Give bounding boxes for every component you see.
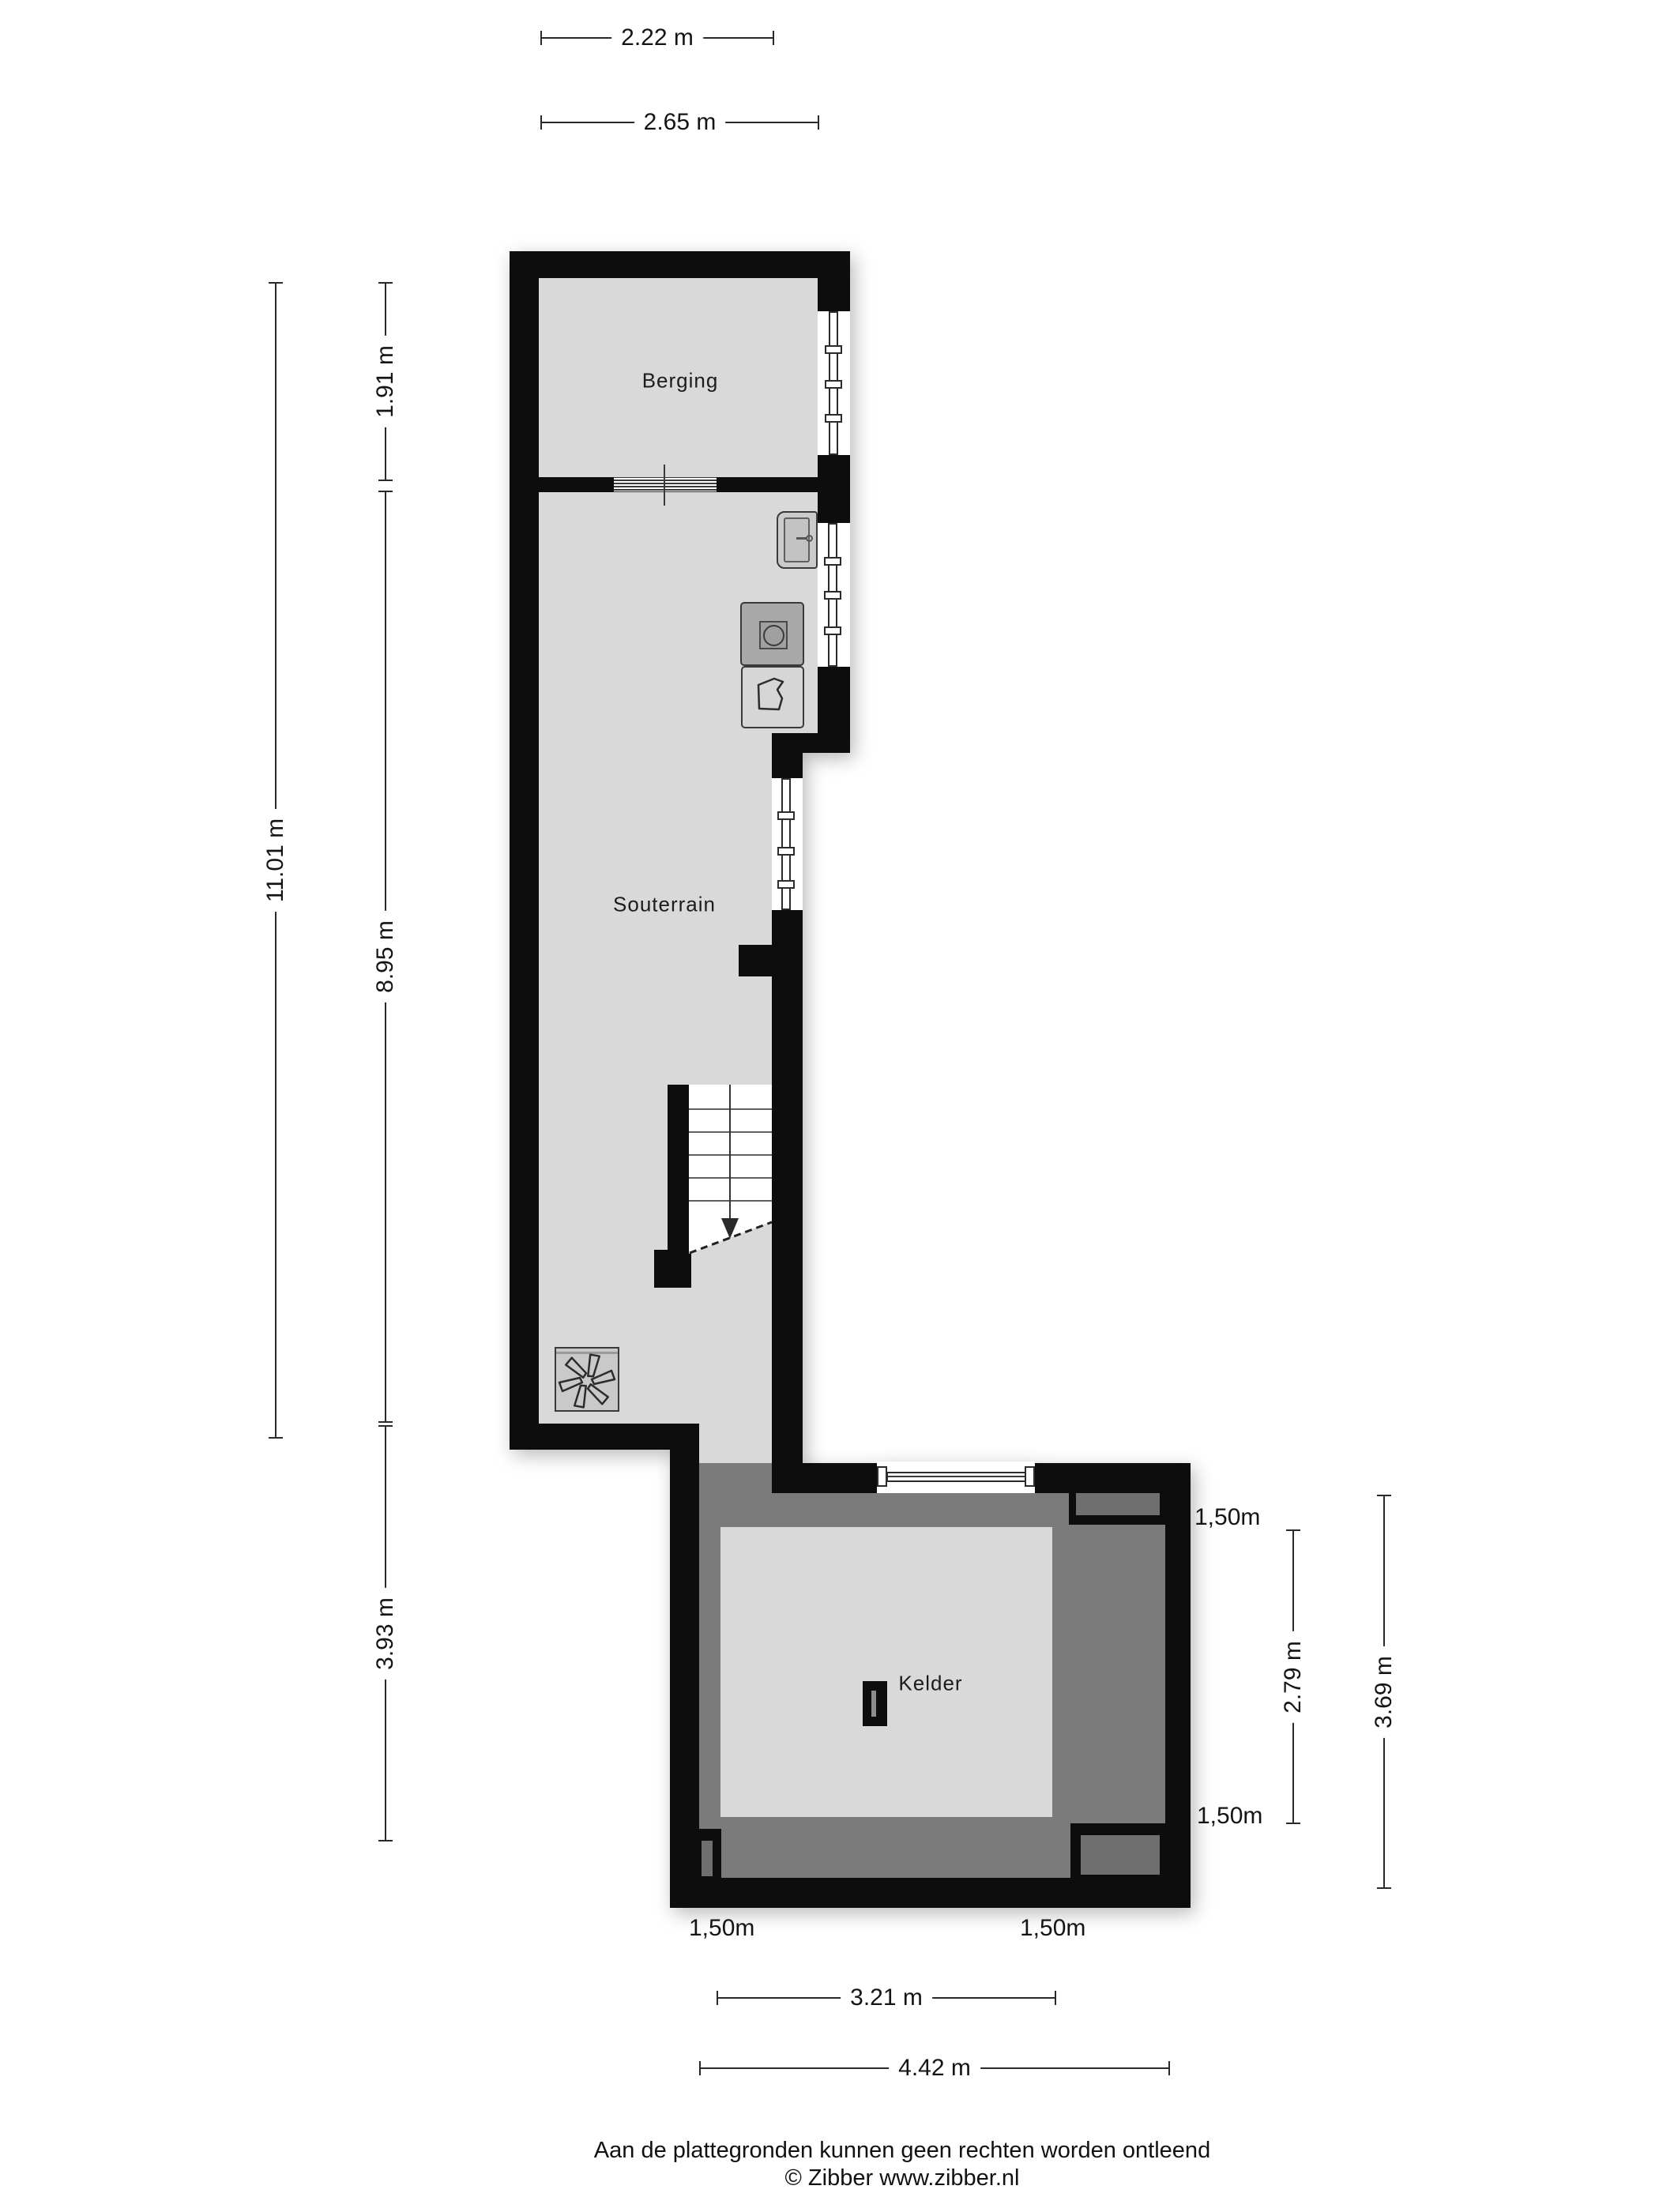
room-label-kelder: Kelder [898,1672,962,1696]
floorplan-page: Berging Souterrain Kelder 2.22 m 2.65 m … [0,0,1659,2212]
dimension-label: 3.93 m [371,1588,401,1680]
dimension-left-souterrain: 8.95 m [385,491,386,1422]
wall-kelder-bottom [670,1878,1191,1908]
souterrain-floor-notch [699,1424,772,1463]
berging-window-pane [825,414,842,423]
floorplan-drawing: Berging Souterrain Kelder [0,0,1659,2212]
stair-wall-stub [654,1250,691,1288]
ventilation-unit [555,1347,619,1412]
wall-divider-left [539,477,614,492]
souterrain-window2-pane [777,880,795,889]
kelder-window-jamb [877,1466,887,1487]
dimension-right-inner: 2.79 m [1292,1530,1294,1823]
hatch-line [614,489,717,491]
footer-disclaimer: Aan de plattegronden kunnen geen rechten… [594,2138,1210,2164]
wall-kelder-top-east [1035,1463,1191,1493]
hatch-line [614,486,717,487]
niche-bottom-right [1081,1835,1160,1875]
wall-east-narrow-2 [772,910,803,1493]
wall-kelder-west [670,1450,699,1908]
kelder-window-midline [888,1476,1025,1477]
wall-top [510,251,850,278]
room-label-berging: Berging [642,369,719,393]
kelder-crawl-zone-upper [699,1463,772,1493]
wall-left [510,251,539,1450]
laundry-tub [741,666,804,728]
souterrain-window2-pane [777,847,795,856]
dimension-label: 11.01 m [261,809,291,912]
souterrain-window2-icon [781,778,791,910]
dimension-left-kelder: 3.93 m [385,1426,386,1841]
dimension-top-small: 2.22 m [541,37,773,39]
dimension-left-berging: 1.91 m [385,283,386,480]
washing-machine-drum-icon [763,625,784,646]
souterrain-floor-main [539,733,772,1424]
dimension-bottom-outer: 4.42 m [700,2067,1169,2069]
wall-east-upper-1 [818,278,850,311]
wall-east-narrow-1 [772,753,803,778]
kelder-column-slot [871,1691,876,1717]
berging-window-pane [825,380,842,389]
wall-kelder-top-west [803,1463,877,1493]
souterrain-window-pane [824,626,841,635]
stair-wall-left [668,1085,689,1254]
wall-protrusion [739,945,772,976]
offset-label-right-bottom: 1,50m [1197,1803,1262,1830]
dimension-left-total: 11.01 m [275,283,276,1438]
dimension-label: 4.42 m [889,2053,980,2083]
souterrain-window-pane [824,557,841,566]
dimension-right-outer: 3.69 m [1383,1495,1385,1888]
footer-copyright: © Zibber www.zibber.nl [785,2165,1020,2191]
room-label-souterrain: Souterrain [613,893,716,917]
dimension-label: 3.69 m [1369,1646,1399,1738]
niche-bottom-left [702,1841,713,1876]
stair-center-line [729,1085,731,1224]
hatch-line [614,480,717,481]
wall-divider-right [717,477,818,492]
sink-faucet-knob [806,535,813,542]
souterrain-window-pane [824,591,841,600]
souterrain-window2-pane [777,811,795,820]
hatch-line [614,483,717,484]
wall-step [772,733,850,753]
dimension-label: 2.79 m [1278,1631,1308,1723]
berging-window-pane [825,345,842,354]
dimension-bottom-inner: 3.21 m [717,1997,1055,1999]
offset-label-bottom-left: 1,50m [689,1915,754,1942]
wall-souterrain-bottom [510,1424,699,1450]
dimension-label: 2.65 m [634,107,726,137]
wall-east-upper-2 [818,455,850,523]
kelder-floor [720,1527,1052,1817]
stairs-direction-arrow-icon [721,1218,739,1239]
offset-label-right-top: 1,50m [1194,1504,1260,1531]
niche-top-right [1076,1493,1160,1515]
dimension-label: 1.91 m [371,336,401,427]
kelder-window-jamb [1025,1466,1035,1487]
offset-label-bottom-right: 1,50m [1020,1915,1085,1942]
dimension-label: 2.22 m [611,23,703,53]
ventilation-unit-edge [556,1352,618,1354]
dimension-top-large: 2.65 m [541,122,818,123]
hatch-pivot-line [664,465,665,506]
dimension-label: 3.21 m [841,1983,932,2013]
dimension-label: 8.95 m [371,911,401,1003]
